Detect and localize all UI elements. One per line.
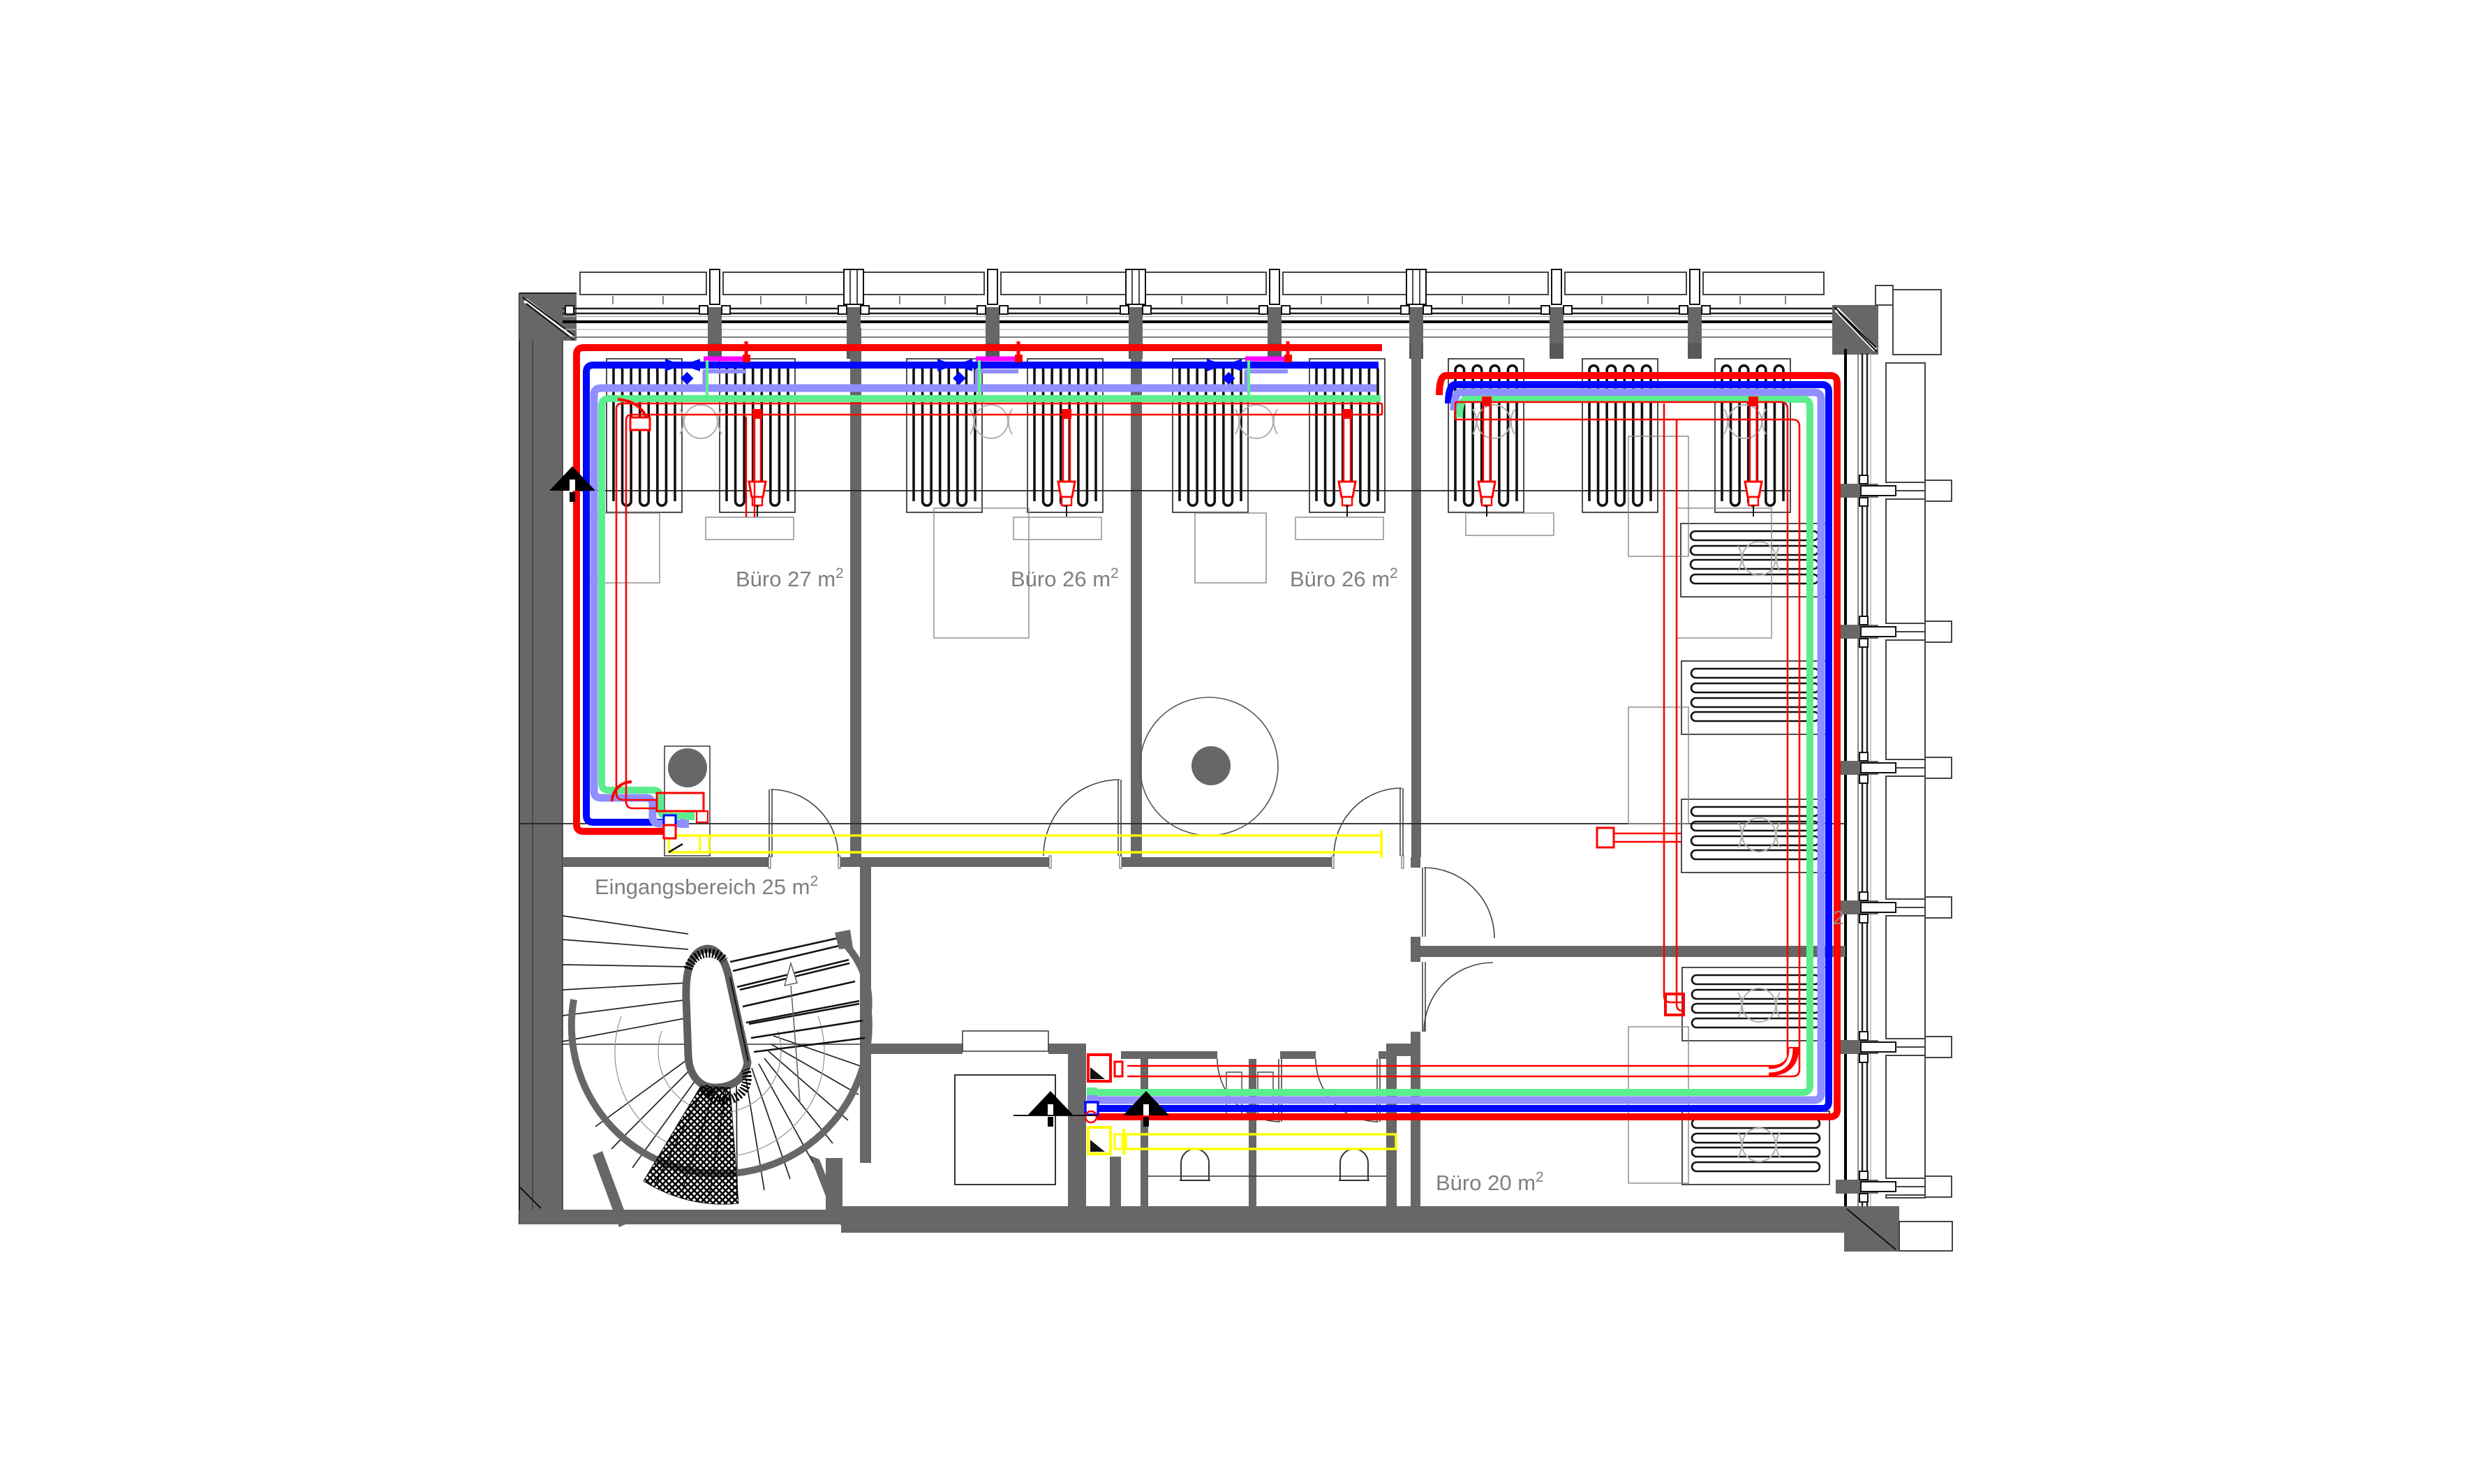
svg-text:Büro 26 m2: Büro 26 m2	[1011, 565, 1119, 591]
svg-text:Büro 27 m2: Büro 27 m2	[736, 565, 844, 591]
svg-text:2: 2	[1833, 907, 1844, 928]
svg-text:Büro 20 m2: Büro 20 m2	[1436, 1169, 1544, 1195]
svg-text:Büro 26 m2: Büro 26 m2	[1290, 565, 1398, 591]
svg-text:Eingangsbereich 25 m2: Eingangsbereich 25 m2	[595, 873, 818, 899]
